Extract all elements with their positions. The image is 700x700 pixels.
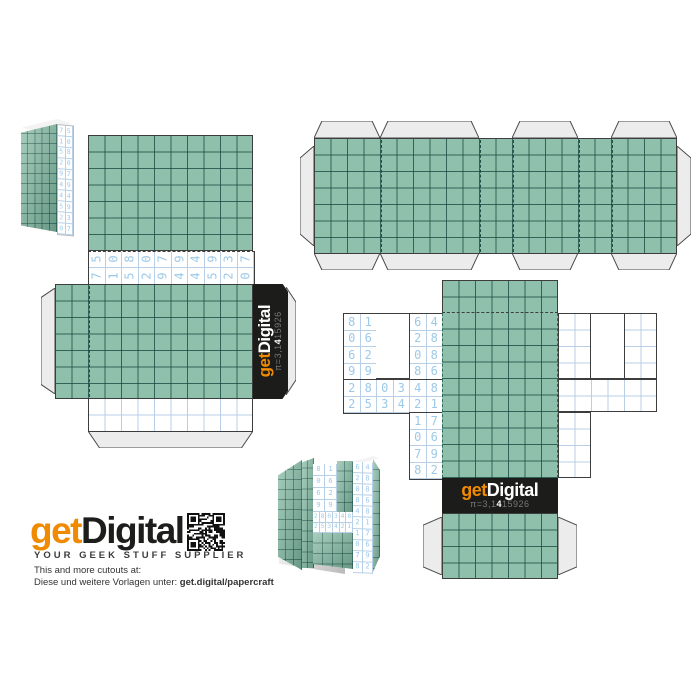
digit-cell: 6	[361, 331, 378, 348]
band-right-tab	[677, 146, 691, 246]
digit-cell: 8	[313, 464, 325, 476]
pi-brand-banner: getDigital π=3,1415926	[442, 478, 558, 513]
band-left-tab	[300, 146, 314, 246]
preview-pi-right-digits: 64280886482117067982	[353, 462, 373, 574]
digit-cell: 3	[326, 523, 333, 534]
banner-pi-value: π=3,1415926	[273, 305, 284, 377]
digit-cell: 1	[106, 268, 123, 285]
pi-left-wing-digits: 81066299	[343, 313, 378, 381]
digit-cell: 9	[325, 500, 337, 512]
band-top-tab-1	[314, 121, 380, 138]
pi-left-cutout	[376, 313, 409, 379]
digit-row: 06	[410, 430, 443, 447]
digit-cell: 8	[363, 485, 373, 496]
digit-cell: 0	[139, 252, 156, 269]
digit-cell: 4	[172, 268, 189, 285]
digit-cell: 2	[353, 517, 363, 528]
digit-row: 17	[353, 529, 373, 541]
digit-cell: 2	[410, 331, 427, 348]
digit-cell: 6	[363, 496, 373, 507]
digit-cell: 2	[344, 397, 361, 414]
digit-row: 86	[410, 364, 443, 381]
preview-stick-digit-face: 75105820974944592307	[57, 124, 74, 236]
digit-cell: 0	[410, 430, 427, 447]
pi-mid-top-digits: 64280886	[409, 313, 444, 381]
digit-row: 280348	[344, 380, 443, 397]
stick-brand-banner: getDigital π=3,1415926	[253, 284, 288, 400]
banner-logo-get: get	[461, 480, 487, 500]
digit-cell: 0	[66, 158, 74, 170]
digit-cell: 5	[205, 268, 222, 285]
digit-cell: 3	[394, 380, 411, 397]
digit-cell: 4	[188, 268, 205, 285]
digit-cell: 6	[325, 476, 337, 488]
digit-row: 79	[353, 551, 373, 563]
preview-stick-side-face	[21, 124, 57, 232]
digit-cell: 4	[363, 462, 373, 473]
digit-cell: 7	[66, 169, 74, 181]
digit-cell: 8	[353, 495, 363, 506]
digit-cell: 8	[344, 314, 361, 331]
digit-cell: 5	[66, 126, 74, 138]
digit-cell: 7	[58, 125, 66, 137]
pi-right-col-upper	[558, 313, 591, 379]
digit-cell: 4	[427, 314, 444, 331]
digit-row: 06	[353, 540, 373, 552]
digit-cell: 7	[66, 224, 74, 236]
digit-cell: 1	[353, 529, 363, 540]
pi-right-col-lower	[558, 412, 591, 478]
digit-cell: 5	[320, 523, 327, 534]
digit-cell: 1	[361, 314, 378, 331]
digit-cell: 0	[353, 540, 363, 551]
digit-cell: 7	[238, 252, 255, 269]
digit-cell: 9	[361, 364, 378, 381]
digit-cell: 3	[66, 213, 74, 225]
digit-cell: 8	[427, 380, 444, 397]
digit-cell: 5	[58, 201, 66, 213]
band-bottom-tab-3	[512, 253, 578, 270]
digit-row: 79	[410, 446, 443, 463]
digit-cell: 8	[410, 364, 427, 381]
digit-cell: 9	[313, 500, 325, 512]
stick-glue-rows	[88, 399, 253, 432]
digit-cell: 2	[313, 523, 320, 534]
digit-cell: 1	[363, 518, 373, 529]
papercraft-sheet: 50807949377152944520 getDigital π=3,1415…	[0, 0, 700, 700]
preview-pi-bar-face	[337, 461, 353, 513]
preview-pi-left-digits: 81066299	[313, 464, 337, 512]
band-top-tab-2	[380, 121, 479, 138]
digit-row: 17	[410, 413, 443, 430]
fold-line	[381, 140, 382, 252]
digit-cell: 8	[363, 507, 373, 518]
digit-cell: 9	[66, 180, 74, 192]
band-top-tab-4	[611, 121, 677, 138]
stick-digit-rows: 50807949377152944520	[88, 251, 255, 286]
banner-logo-get: get	[255, 353, 274, 377]
digit-cell: 9	[172, 252, 189, 269]
pi-flap-right-tab	[558, 517, 577, 575]
digit-cell: 0	[344, 331, 361, 348]
fold-line	[480, 140, 481, 252]
digit-cell: 2	[325, 488, 337, 500]
footer-tagline: YOUR GEEK STUFF SUPPLIER	[34, 550, 246, 561]
digit-cell: 2	[344, 380, 361, 397]
digit-cell: 2	[410, 397, 427, 414]
digit-row: 99	[313, 500, 337, 512]
band-bottom-tab-1	[314, 253, 380, 270]
digit-cell: 0	[238, 268, 255, 285]
digit-cell: 0	[66, 137, 74, 149]
digit-row: 21	[353, 517, 373, 529]
digit-cell: 8	[427, 347, 444, 364]
fold-line	[579, 140, 580, 252]
digit-cell: 9	[344, 364, 361, 381]
band-bottom-tab-4	[611, 253, 677, 270]
footer-logo: getDigital	[30, 512, 184, 549]
digit-cell: 8	[353, 562, 363, 573]
stick-top-face-grid	[88, 135, 253, 251]
digit-cell: 0	[313, 476, 325, 488]
digit-cell: 2	[58, 212, 66, 224]
footer-logo-get: get	[30, 510, 81, 551]
banner-pi-value: π=3,1415926	[470, 499, 530, 510]
digit-row: 81	[344, 314, 377, 331]
digit-row: 99	[344, 364, 377, 381]
qr-code	[187, 513, 225, 551]
preview-pi-inner-face	[313, 533, 353, 569]
digit-cell: 4	[188, 252, 205, 269]
digit-row: 28	[410, 331, 443, 348]
digit-cell: 8	[320, 512, 327, 523]
digit-row: 280348	[313, 512, 353, 523]
stick-bottom-tab	[88, 431, 253, 448]
preview-pi-left-side-face	[278, 460, 302, 570]
digit-cell: 6	[313, 488, 325, 500]
digit-cell: 2	[221, 268, 238, 285]
digit-row: 06	[313, 476, 337, 488]
digit-cell: 3	[377, 397, 394, 414]
preview-pi-right-sliver	[373, 459, 380, 572]
digit-cell: 4	[410, 380, 427, 397]
banner-logo-digital: Digital	[255, 305, 274, 353]
footer-info-line2: Diese und weitere Vorlagen unter: get.di…	[34, 577, 274, 588]
digit-row: 7152944520	[89, 268, 254, 285]
digit-cell: 4	[333, 523, 340, 534]
band-grid	[314, 138, 677, 254]
digit-row: 81	[313, 464, 337, 476]
stick-left-tab	[41, 288, 55, 394]
digit-row: 08	[410, 347, 443, 364]
digit-cell: 8	[410, 463, 427, 480]
digit-cell: 2	[340, 523, 347, 534]
digit-cell: 1	[410, 413, 427, 430]
digit-cell: 8	[66, 148, 74, 160]
digit-cell: 9	[363, 551, 373, 562]
band-bottom-tab-2	[380, 253, 479, 270]
pi-wide-row-digits: 280348253421	[343, 379, 444, 414]
digit-cell: 1	[325, 464, 337, 476]
pi-front-face-grid	[442, 313, 558, 478]
digit-cell: 5	[361, 397, 378, 414]
digit-row: 64	[353, 462, 373, 474]
pi-flap-left-tab	[423, 517, 442, 575]
digit-cell: 5	[58, 147, 66, 159]
digit-cell: 7	[155, 252, 172, 269]
digit-row: 07	[58, 223, 73, 235]
digit-row: 64	[410, 314, 443, 331]
digit-cell: 8	[361, 380, 378, 397]
pi-bottom-flap-grid	[442, 513, 558, 579]
digit-cell: 5	[122, 268, 139, 285]
digit-cell: 6	[427, 430, 444, 447]
digit-cell: 2	[361, 347, 378, 364]
digit-cell: 2	[353, 473, 363, 484]
digit-cell: 2	[58, 158, 66, 170]
digit-cell: 4	[353, 506, 363, 517]
banner-logo-digital: Digital	[487, 480, 539, 500]
digit-row: 253421	[344, 397, 443, 414]
digit-cell: 9	[427, 446, 444, 463]
digit-cell: 6	[410, 314, 427, 331]
digit-cell: 7	[427, 413, 444, 430]
pi-top-cap-grid	[442, 280, 558, 313]
digit-cell: 4	[394, 397, 411, 414]
band-top-tab-3	[512, 121, 578, 138]
fold-line	[612, 140, 613, 252]
digit-cell: 6	[344, 347, 361, 364]
digit-cell: 3	[333, 512, 340, 523]
digit-cell: 0	[353, 484, 363, 495]
digit-cell: 9	[66, 202, 74, 214]
digit-cell: 0	[326, 512, 333, 523]
digit-cell: 1	[427, 397, 444, 414]
digit-cell: 8	[363, 473, 373, 484]
digit-cell: 7	[363, 529, 373, 540]
digit-cell: 4	[58, 180, 66, 192]
stick-front-face-grid	[55, 284, 253, 400]
digit-cell: 4	[58, 190, 66, 202]
footer-logo-digital: Digital	[81, 510, 184, 551]
digit-cell: 6	[427, 364, 444, 381]
digit-row: 62	[344, 347, 377, 364]
digit-cell: 6	[353, 462, 363, 473]
digit-cell: 2	[363, 562, 373, 573]
digit-cell: 6	[363, 540, 373, 551]
digit-cell: 0	[106, 252, 123, 269]
digit-cell: 7	[410, 446, 427, 463]
digit-cell: 7	[353, 551, 363, 562]
digit-row: 62	[313, 488, 337, 500]
fold-line	[513, 140, 514, 252]
digit-cell: 9	[155, 268, 172, 285]
digit-cell: 2	[313, 512, 320, 523]
digit-row: 82	[410, 463, 443, 480]
digit-cell: 9	[205, 252, 222, 269]
digit-cell: 0	[410, 347, 427, 364]
digit-row: 86	[353, 495, 373, 507]
preview-pi-wide-digits: 280348253421	[313, 512, 353, 533]
digit-cell: 4	[340, 512, 347, 523]
pi-right-col-outer	[624, 313, 657, 379]
digit-row: 28	[353, 473, 373, 485]
digit-row: 08	[353, 484, 373, 496]
digit-cell: 0	[377, 380, 394, 397]
digit-cell: 9	[58, 169, 66, 181]
pi-right-wide-rows	[558, 379, 657, 412]
digit-row: 82	[353, 562, 373, 574]
pi-mid-bottom-digits: 17067982	[409, 412, 444, 480]
digit-row: 253421	[313, 523, 353, 534]
digit-cell: 7	[89, 268, 106, 285]
digit-cell: 1	[58, 136, 66, 148]
fold-line	[89, 286, 90, 398]
digit-row: 48	[353, 506, 373, 518]
digit-cell: 5	[89, 252, 106, 269]
pi-right-cutout	[591, 313, 624, 379]
footer-info-line1: This and more cutouts at:	[34, 565, 141, 576]
digit-cell: 8	[122, 252, 139, 269]
digit-cell: 2	[427, 463, 444, 480]
digit-row: 5080794937	[89, 252, 254, 269]
digit-cell: 2	[139, 268, 156, 285]
digit-cell: 8	[427, 331, 444, 348]
digit-row: 06	[344, 331, 377, 348]
digit-cell: 4	[66, 191, 74, 203]
digit-cell: 0	[58, 223, 66, 235]
digit-cell: 3	[221, 252, 238, 269]
